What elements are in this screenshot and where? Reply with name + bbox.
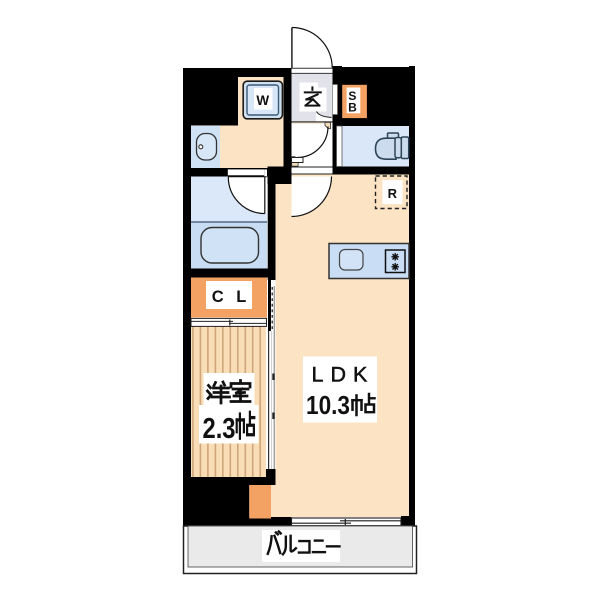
svg-text:C L: C L bbox=[212, 288, 251, 306]
svg-text:2.3: 2.3 bbox=[203, 413, 236, 445]
svg-text:LDK: LDK bbox=[312, 363, 375, 387]
svg-text:R: R bbox=[388, 186, 398, 201]
svg-text:10.3: 10.3 bbox=[306, 390, 350, 420]
svg-text:B: B bbox=[348, 101, 357, 115]
svg-text:W: W bbox=[256, 93, 269, 108]
